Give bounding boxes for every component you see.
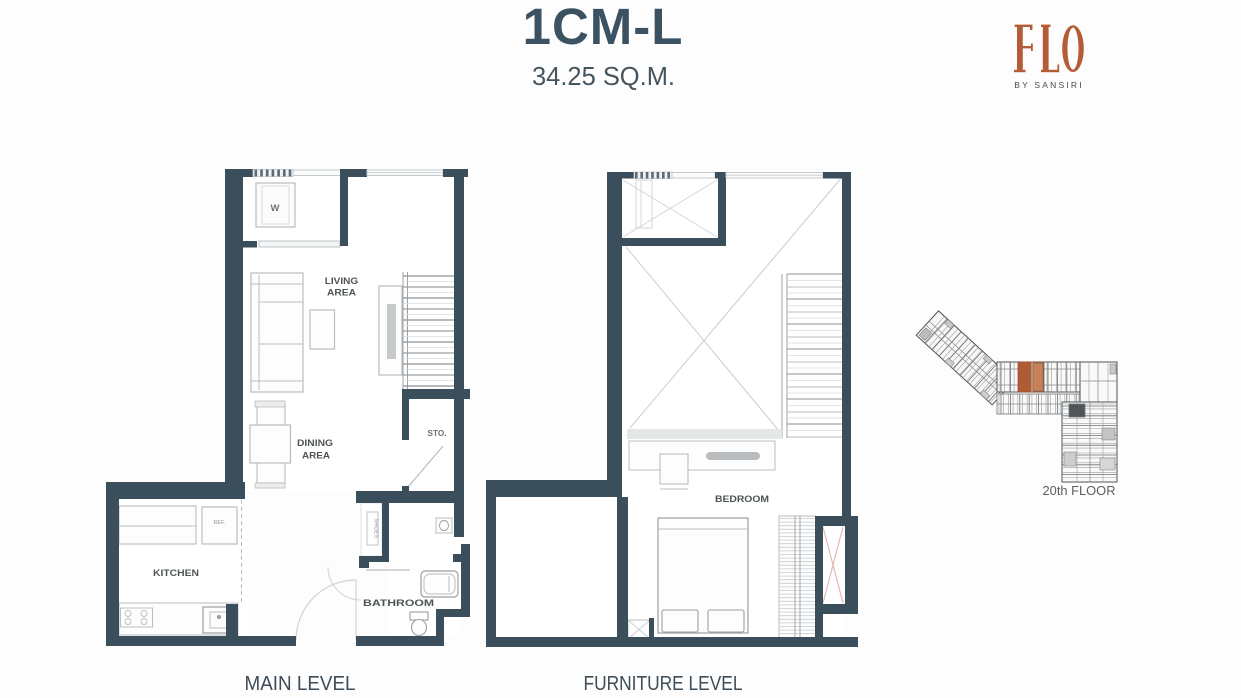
svg-text:REF.: REF. <box>213 520 225 526</box>
svg-text:DINING: DINING <box>297 438 333 448</box>
svg-text:FURNITURE LEVEL: FURNITURE LEVEL <box>584 673 743 695</box>
svg-text:20th FLOOR: 20th FLOOR <box>1043 483 1116 498</box>
svg-text:STO.: STO. <box>428 429 447 438</box>
svg-text:1CM-L: 1CM-L <box>523 0 684 55</box>
svg-text:KITCHEN: KITCHEN <box>153 568 199 578</box>
svg-text:MAIN LEVEL: MAIN LEVEL <box>245 673 356 695</box>
svg-text:AREA: AREA <box>327 288 357 298</box>
svg-text:BEDROOM: BEDROOM <box>715 494 769 504</box>
svg-text:W: W <box>271 203 280 214</box>
svg-text:SHOES: SHOES <box>373 519 379 539</box>
svg-text:LIVING: LIVING <box>325 276 359 286</box>
svg-text:BY SANSIRI: BY SANSIRI <box>1014 80 1084 90</box>
svg-text:34.25 SQ.M.: 34.25 SQ.M. <box>532 61 675 91</box>
svg-text:BATHROOM: BATHROOM <box>363 598 434 608</box>
svg-text:AREA: AREA <box>302 451 331 461</box>
